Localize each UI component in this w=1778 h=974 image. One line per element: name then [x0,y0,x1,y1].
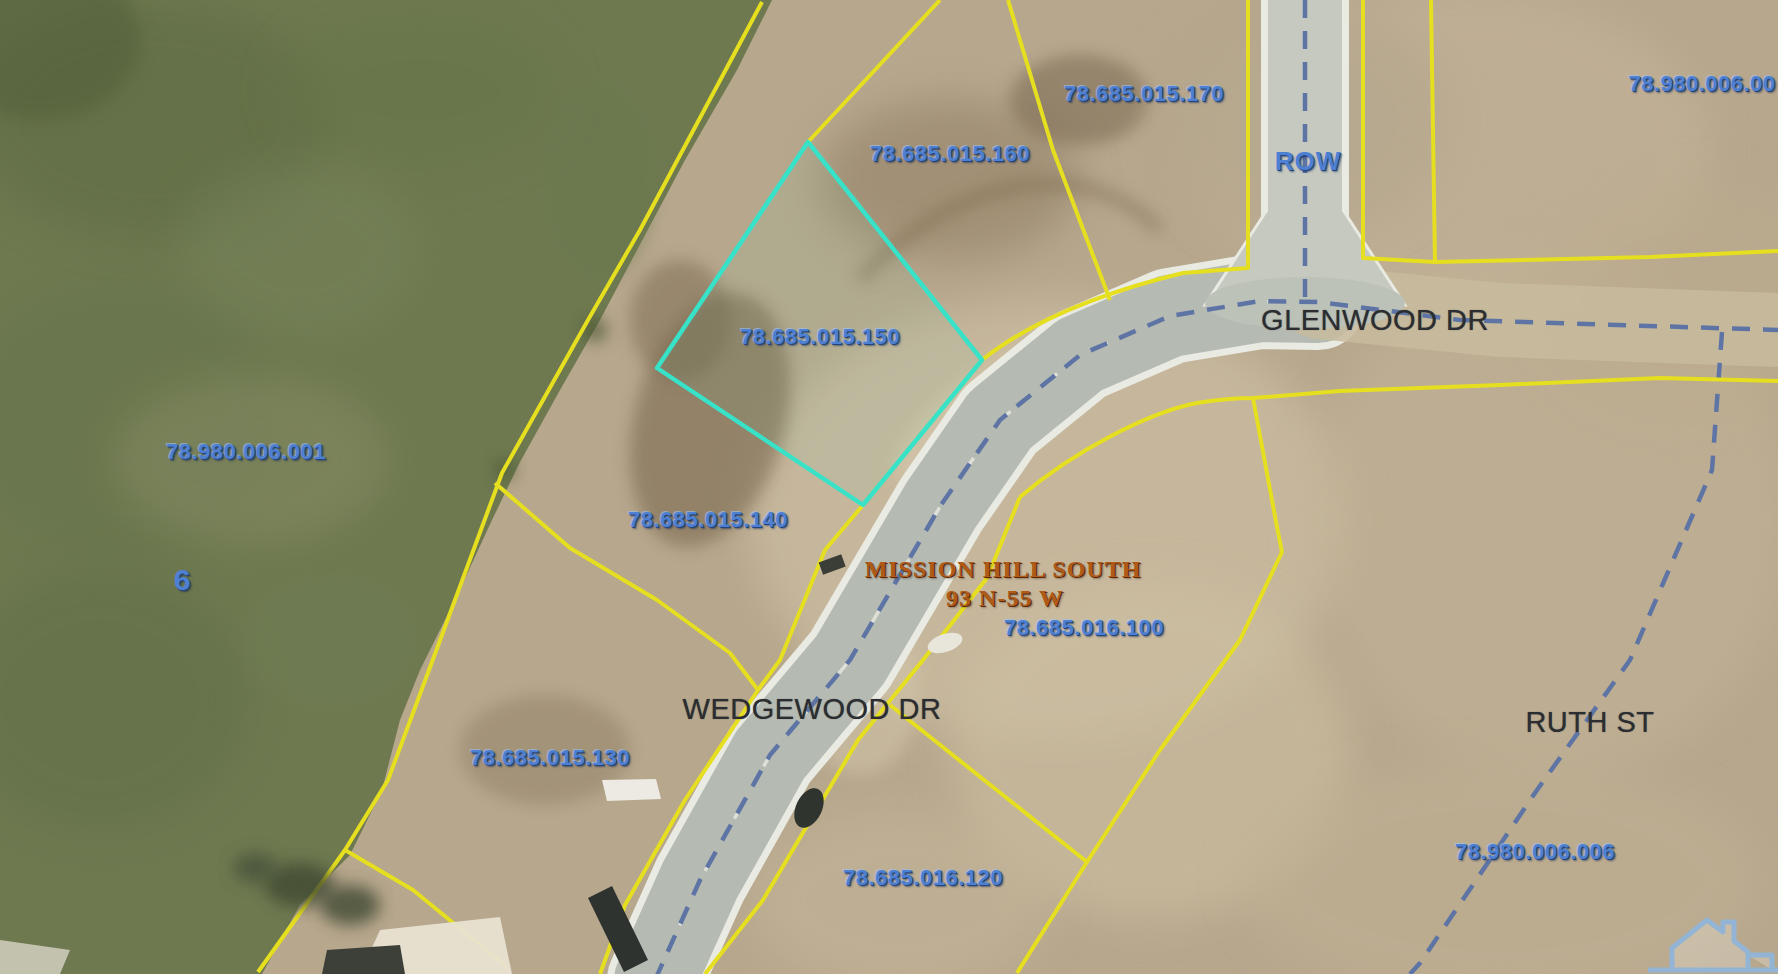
tree-canopy [320,885,380,925]
tree-canopy [233,853,277,883]
gis-map-viewport[interactable]: 78.685.015.17078.685.015.16078.980.006.0… [0,0,1778,974]
truck-white [602,779,661,801]
aerial-basemap [0,0,1778,974]
